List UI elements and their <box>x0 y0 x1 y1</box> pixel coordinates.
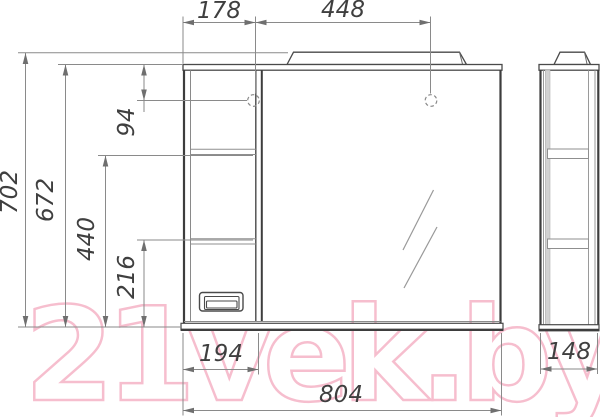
top-cap-side <box>539 65 599 71</box>
shelf-lines-side <box>548 149 589 249</box>
socket-outlet <box>200 293 244 312</box>
lamp-front <box>287 52 467 64</box>
drawing-svg <box>0 0 600 417</box>
front-view <box>181 52 503 330</box>
mounting-hole-right <box>425 95 437 107</box>
side-view <box>539 52 599 331</box>
dimension-lines <box>18 17 598 416</box>
mirror-panel-shade <box>545 70 550 325</box>
glass-marks <box>403 190 437 288</box>
product-dimension-drawing: 21vek.by <box>0 0 600 417</box>
lamp-side <box>554 52 591 64</box>
top-cap-front <box>183 65 502 71</box>
divider-panel <box>256 70 262 321</box>
shelf-lines-front <box>191 149 256 244</box>
mounting-hole-left <box>248 95 260 107</box>
